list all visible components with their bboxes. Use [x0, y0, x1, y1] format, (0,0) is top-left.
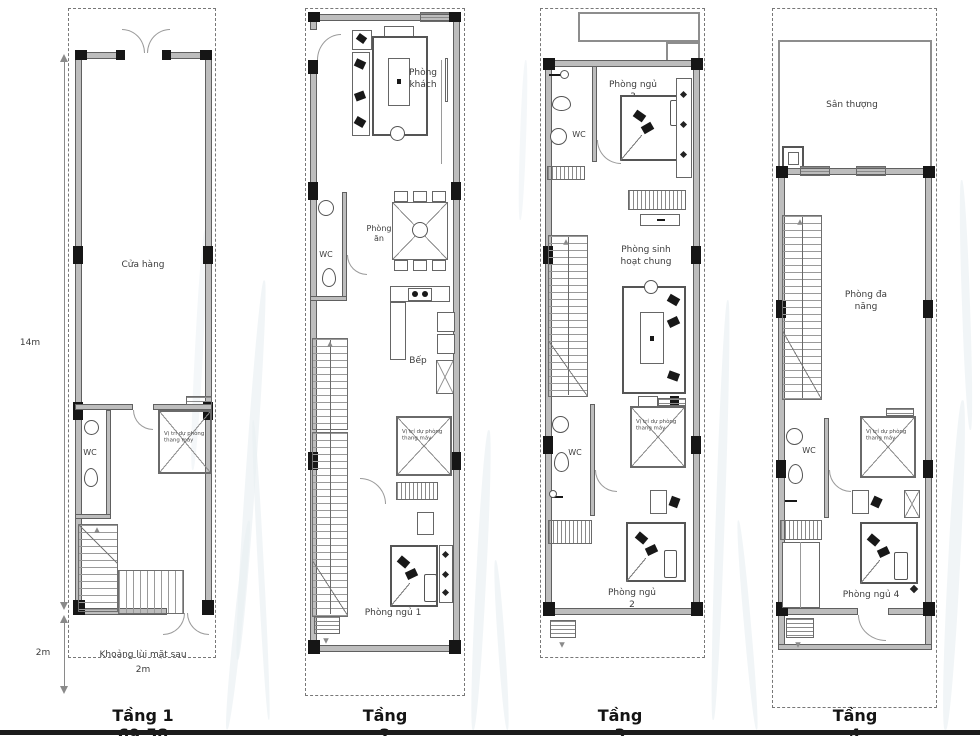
desk [852, 490, 869, 514]
shower-head [560, 70, 569, 79]
pier [308, 182, 318, 200]
dimension-line [64, 58, 65, 606]
room-label-multi: Phòng đa năng [840, 290, 892, 313]
ac-unit [550, 620, 576, 638]
chair [432, 260, 446, 271]
cabinet-hatch [396, 482, 438, 500]
sink [786, 428, 803, 445]
pier [923, 460, 933, 478]
watermark-streak [709, 300, 733, 720]
shower-arm [785, 500, 797, 502]
cabinet-hatch [547, 166, 585, 180]
fridge [437, 312, 455, 332]
room-label-elevator: Vị trí dự phòng thang máy [866, 428, 914, 442]
ceiling-fan [412, 222, 428, 238]
toilet [552, 96, 571, 111]
pillow [664, 550, 677, 578]
pier [923, 602, 935, 616]
setback-label: Khoảng lùi mặt sau [88, 650, 198, 662]
pier [776, 166, 788, 178]
room-label-terrace: Sân thượng [822, 100, 882, 112]
stair-break-line [548, 340, 588, 397]
wall-segment [590, 404, 595, 516]
wall-segment [453, 14, 460, 652]
wall-hatch [886, 408, 914, 416]
blanket-fold [620, 135, 642, 161]
wall-segment [925, 168, 932, 650]
chair [413, 260, 427, 271]
room-label-elevator: Vị trí dự phòng thang máy [164, 430, 212, 444]
chair [394, 191, 408, 202]
watermark-streak [517, 60, 529, 220]
fridge [437, 334, 455, 354]
blanket-fold [860, 560, 880, 584]
ac-unit [314, 616, 340, 634]
cabinet-hatch [548, 520, 592, 544]
wall-segment [310, 645, 460, 652]
room-label-bedroom4: Phòng ngủ 4 [842, 590, 900, 602]
arrow-down-icon [60, 602, 68, 610]
watermark-streak [735, 520, 760, 730]
elevator-shaft [396, 416, 452, 476]
pier [308, 12, 320, 22]
wall-hatch [800, 166, 830, 176]
stair-run [118, 570, 184, 614]
wall-segment [205, 52, 212, 615]
arrow-down-icon [323, 638, 329, 644]
watermark-streak [250, 420, 272, 720]
pier [923, 166, 935, 178]
pier [543, 436, 553, 454]
stair-break-line [782, 330, 822, 400]
drawer-handle [657, 219, 665, 221]
pier [308, 640, 320, 654]
closet [782, 542, 820, 608]
room-label-family: Phòng sinh hoạt chung [616, 245, 676, 268]
wall-segment [75, 514, 111, 519]
bottom-rule [0, 730, 980, 735]
arrow-down-icon [795, 642, 801, 648]
room-label-wc: WC [566, 130, 592, 140]
ceiling-fan [644, 280, 658, 294]
closet-divider [800, 542, 801, 608]
pier [449, 12, 461, 22]
room-label-dining: Phòng ăn [366, 224, 392, 243]
planter-inner [788, 152, 799, 165]
dimension-label: 14m [8, 338, 52, 350]
cabinet-hatch [780, 520, 822, 540]
pier [923, 300, 933, 318]
sink [318, 200, 334, 216]
pier [691, 602, 703, 616]
wall-segment [778, 608, 858, 615]
desk [417, 512, 434, 535]
bench-hatch [628, 190, 686, 210]
wall-hatch [658, 398, 686, 406]
room-label-kitchen: Bếp [404, 356, 432, 368]
pier [308, 60, 318, 74]
arrow-down-icon [60, 686, 68, 694]
stair-direction-arrow-icon [563, 239, 569, 245]
room-label-wc: WC [75, 448, 105, 458]
stair-direction-arrow-icon [797, 219, 803, 225]
wall-segment [592, 66, 597, 162]
pier [776, 460, 786, 478]
wall-segment [106, 410, 111, 516]
setback-label: 2m [88, 665, 198, 677]
pier [691, 436, 701, 454]
room-label-living: Phòng khách [398, 68, 448, 91]
sink [552, 416, 569, 433]
watermark-streak [958, 180, 975, 430]
burner [412, 291, 418, 297]
chair [413, 191, 427, 202]
pier [451, 182, 461, 200]
pier [449, 640, 461, 654]
pier [451, 452, 461, 470]
watermark-streak [468, 430, 494, 730]
wall-segment [778, 644, 932, 650]
pier [543, 602, 555, 616]
balcony-parapet [578, 12, 700, 42]
chair [432, 191, 446, 202]
pier [75, 50, 87, 60]
elevator-shaft [860, 416, 916, 478]
kitchen-counter [390, 302, 406, 360]
sink [84, 420, 99, 435]
dimension-label: 2m [28, 648, 58, 660]
stair-break-line [312, 560, 348, 616]
wall-segment [824, 418, 829, 518]
wall-segment [693, 60, 700, 615]
chair [394, 260, 408, 271]
shower-head [549, 490, 557, 498]
pier [543, 58, 555, 70]
stair-direction-arrow-icon [327, 341, 333, 347]
toilet [788, 464, 803, 484]
pillow [894, 552, 908, 580]
wall-hatch [856, 166, 886, 176]
room-label-shop: Cửa hàng [110, 260, 176, 272]
arrow-up-icon [60, 615, 68, 623]
wall-segment [75, 404, 133, 410]
watermark-streak [492, 560, 511, 730]
stair-direction-arrow-icon [94, 527, 100, 533]
pier [203, 246, 213, 264]
arrow-up-icon [60, 54, 68, 62]
watermark-streak [939, 400, 968, 730]
blanket-fold [390, 583, 410, 607]
ac-unit [786, 618, 814, 638]
elevator-shaft [630, 406, 686, 468]
table-decor [650, 336, 654, 341]
room-label-wc: WC [312, 250, 340, 260]
pillow [424, 574, 437, 602]
watermark-streak [223, 520, 253, 730]
pier [200, 50, 212, 60]
wall-segment [545, 60, 700, 67]
toilet [322, 268, 336, 287]
burner [422, 291, 428, 297]
shaft-vent [436, 360, 454, 394]
pier [691, 246, 701, 264]
sink [550, 128, 567, 145]
toilet [84, 468, 98, 487]
room-label-bedroom2: Phòng ngủ 2 [604, 588, 660, 611]
wall-hatch [186, 396, 212, 405]
room-label-wc: WC [562, 448, 588, 458]
dimension-line [64, 620, 65, 692]
wall-segment [342, 192, 347, 300]
wall-segment [310, 296, 347, 301]
ceiling-fan [390, 126, 405, 141]
shelf [904, 490, 920, 518]
arrow-down-icon [559, 642, 565, 648]
pier [73, 246, 83, 264]
room-label-elevator: Vị trí dự phòng thang máy [402, 428, 450, 442]
floor-plans-canvas: 14m 2m Cửa hàng WC [0, 0, 980, 736]
room-label-bedroom1: Phòng ngủ 1 [361, 608, 425, 620]
blanket-fold [626, 558, 646, 582]
room-label-wc: WC [796, 446, 822, 456]
room-label-elevator: Vị trí dự phòng thang máy [636, 418, 684, 432]
pier [691, 58, 703, 70]
desk [650, 490, 667, 514]
